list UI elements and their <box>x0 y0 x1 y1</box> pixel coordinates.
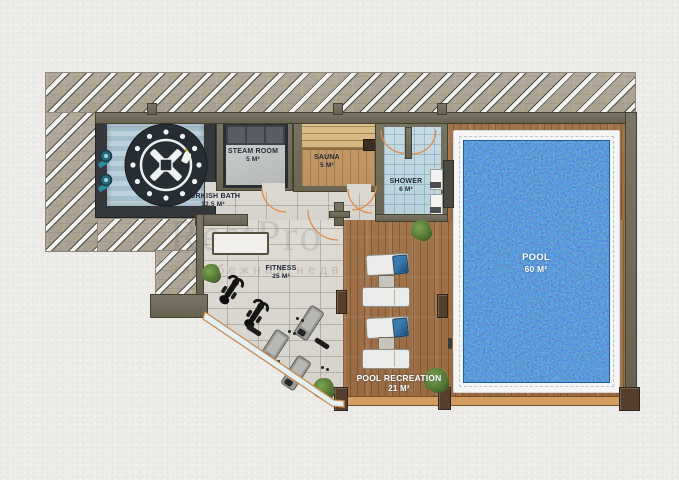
plant-icon <box>411 220 431 240</box>
fitness-bench <box>212 232 269 255</box>
wall-stub <box>333 103 343 115</box>
room-label-shower: SHOWER 6 M² <box>366 177 446 195</box>
deck-post <box>336 290 347 314</box>
wall-below-shower <box>375 214 448 222</box>
fitness-area: 25 M² <box>241 273 321 281</box>
steam-seat <box>228 127 245 143</box>
steam-room-name: STEAM ROOM <box>213 147 293 156</box>
steam-room-area: 5 M² <box>213 156 293 164</box>
hatch-block-left <box>45 112 99 252</box>
dumbbell-icon <box>321 366 324 369</box>
wall-stub <box>437 103 447 115</box>
sauna-area: 5 M² <box>287 162 367 170</box>
room-label-sauna: SAUNA 5 M² <box>287 153 367 171</box>
steam-room-door-gap <box>262 183 285 192</box>
deck-post-corner <box>619 387 640 411</box>
sun-lounger <box>362 287 410 307</box>
room-label-pool: POOL 60 M² <box>486 252 586 275</box>
room-label-turkish-bath: TURKISH BATH 12,5 M² <box>168 192 258 210</box>
towel <box>392 317 409 337</box>
deck-edge-trim <box>343 396 637 406</box>
dumbbell-icon <box>296 317 299 320</box>
turkish-bath-area: 12,5 M² <box>168 201 258 209</box>
room-label-fitness: FITNESS 25 M² <box>241 264 321 282</box>
shower-area: 6 M² <box>366 186 446 194</box>
wall-glass-corner <box>150 294 208 318</box>
shower-unit-base <box>430 207 441 213</box>
dumbbell-icon <box>288 330 291 333</box>
shower-name: SHOWER <box>366 177 446 186</box>
room-label-steam: STEAM ROOM 5 M² <box>213 147 293 165</box>
sauna-name: SAUNA <box>287 153 367 162</box>
floor-plan: RestPro Зарубежная недвижимость <box>0 0 679 480</box>
plant-icon <box>202 264 220 282</box>
wall-t-stub-h <box>329 211 350 218</box>
dumbbell-icon <box>272 358 275 361</box>
wall-top <box>95 112 637 124</box>
pool-recreation-name: POOL RECREATION <box>339 373 459 384</box>
hatch-band-below-bath <box>97 218 205 252</box>
towel <box>392 254 409 274</box>
sun-lounger <box>362 349 410 369</box>
wall-stub <box>147 103 157 115</box>
pool-name: POOL <box>486 252 586 264</box>
steam-seat <box>247 127 264 143</box>
deck-post <box>437 294 448 318</box>
room-label-pool-recreation: POOL RECREATION 21 M² <box>339 373 459 394</box>
steam-seat <box>266 127 283 143</box>
shower-room <box>375 112 448 222</box>
fitness-name: FITNESS <box>241 264 321 273</box>
pool-recreation-area: 21 M² <box>339 384 459 394</box>
wall-fitness-left <box>196 214 204 298</box>
plant-icon <box>313 378 334 399</box>
wall-right <box>625 112 637 396</box>
pool-area: 60 M² <box>486 264 586 275</box>
turkish-bath-name: TURKISH BATH <box>168 192 258 201</box>
steam-room-bench <box>226 125 285 145</box>
shower-divider-stub <box>405 127 412 159</box>
